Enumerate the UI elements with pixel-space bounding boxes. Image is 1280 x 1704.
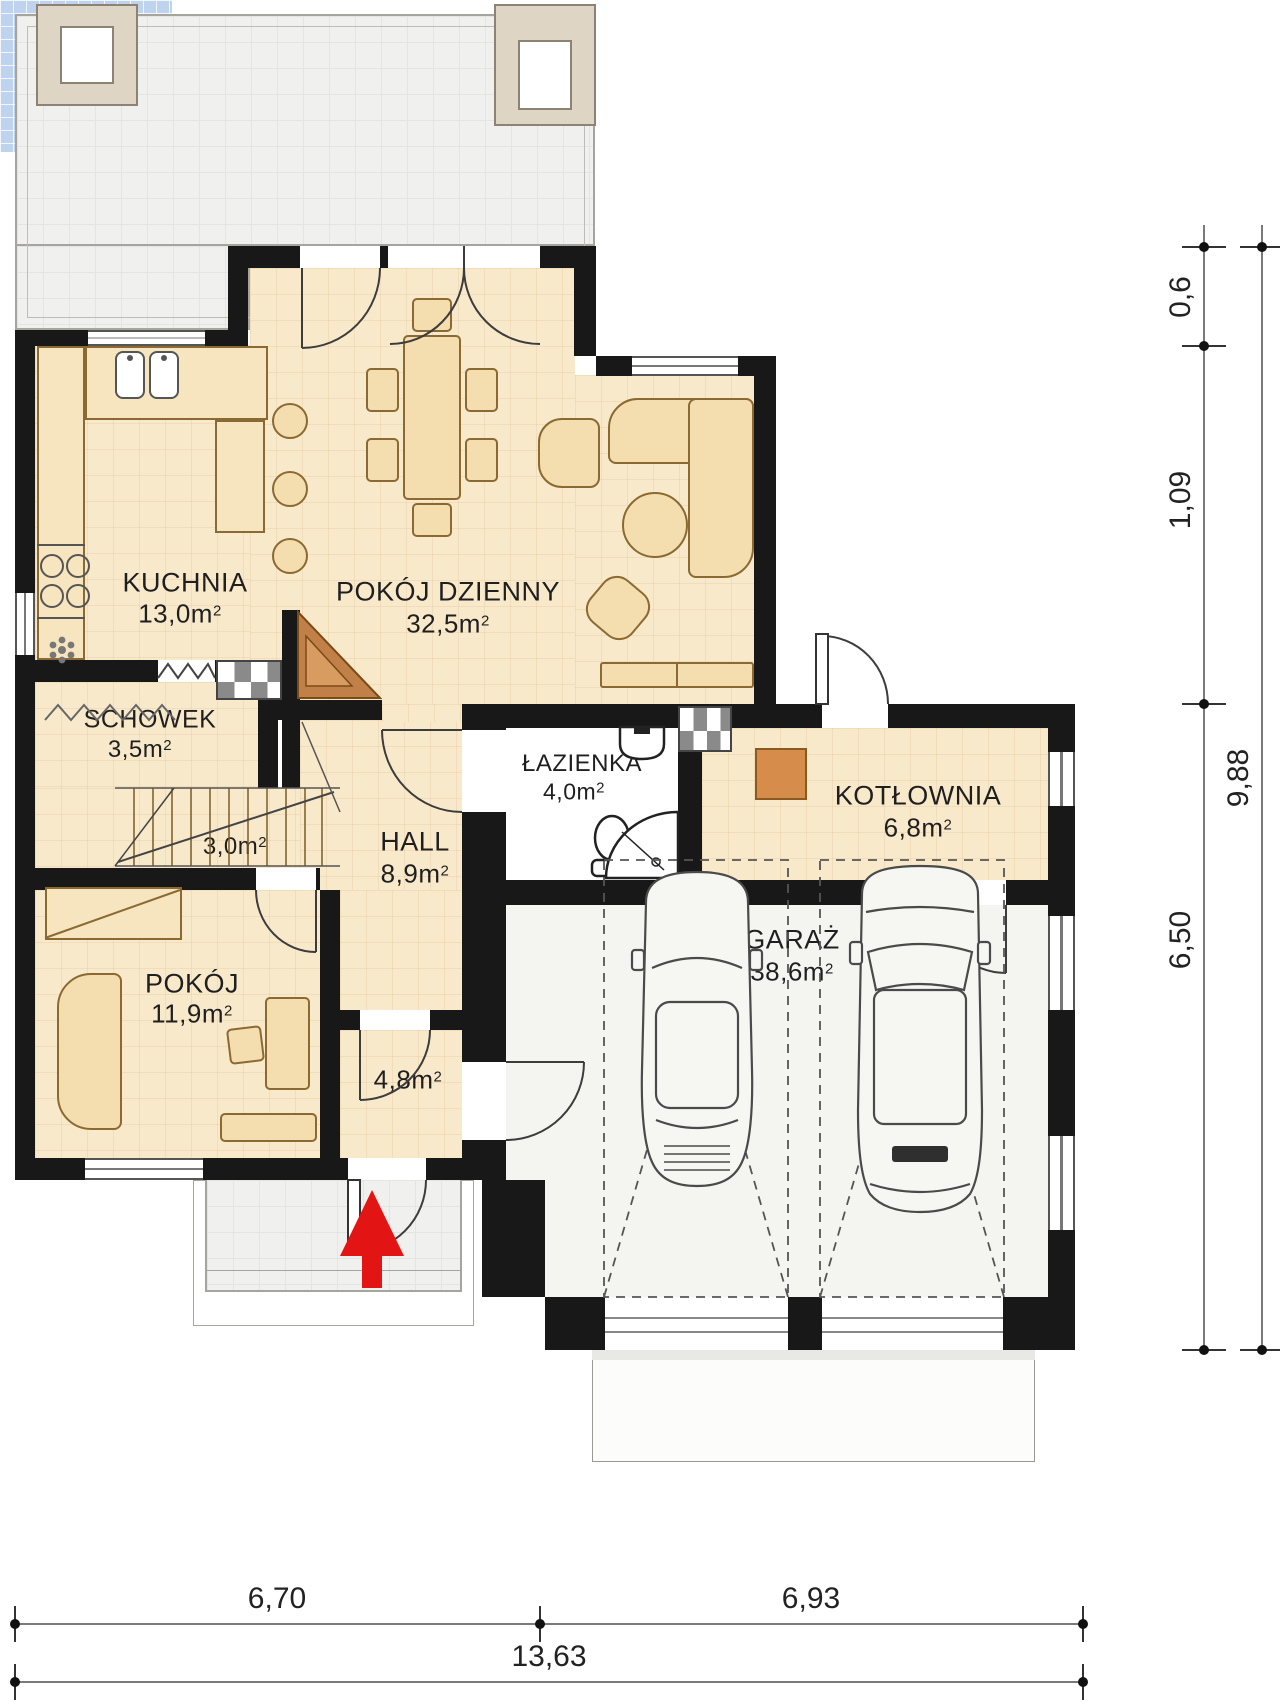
room-area-kuchnia: 13,0m2 [138,599,222,630]
window-schowek [15,593,35,655]
stairs-floor [35,788,320,868]
door-opening-pokoj [256,868,316,890]
window-boiler-room [1048,752,1075,806]
dim-right-1: 1,09 [1164,471,1197,529]
window-living-east [632,356,738,376]
corner-sofa-side [688,398,754,578]
wall [380,246,388,268]
wall [1003,1297,1075,1350]
wall [203,1158,320,1180]
kitchen-counter-top [85,346,268,420]
dim-right-0: 0,6 [1164,276,1197,318]
wall [15,330,88,346]
room-label-pokoj-dzienny: POKÓJ DZIENNY [336,577,560,608]
wall [1048,1010,1075,1136]
desk-chair [226,1025,265,1065]
room-area-pokoj-dzienny: 32,5m2 [406,609,490,640]
hall-floor-patch [382,704,462,722]
garage-door-opening-1 [605,1297,788,1350]
window-kitchen [88,330,205,346]
wall [738,356,776,376]
room-area-schody: 3,0m2 [203,833,267,861]
wall [754,376,776,704]
wall [320,890,340,1158]
hall-floor-lower [340,890,462,1030]
wall [540,246,596,268]
room-label-kotlownia: KOTŁOWNIA [835,781,1002,812]
window-pokoj [85,1158,203,1180]
wall [462,704,822,728]
room-label-hall: HALL [380,827,450,858]
kitchen-island [215,420,265,533]
wall [282,610,300,788]
room-area-hall: 8,9m2 [381,859,450,890]
wall [316,868,320,890]
dining-chair [366,438,399,482]
entrance-porch [205,1180,462,1292]
dining-chair [465,438,498,482]
chimney-block [216,660,282,700]
driveway-top-band [592,1350,1035,1360]
dining-chair [412,298,452,332]
pillar-core [60,26,114,84]
dining-chair [465,368,498,412]
coffee-table-round [622,492,688,558]
shelf [220,1113,317,1142]
front-door-opening [348,1158,426,1180]
wall [270,700,382,720]
door-opening-garage-vest [462,1062,506,1140]
dim-bottom-2: 13,63 [511,1640,586,1673]
door-opening-bathroom [462,730,506,812]
tv-bench-divider [676,664,678,686]
dining-chair [366,368,399,412]
sofa [57,973,122,1130]
window-garage-2 [1048,1136,1075,1230]
wall [430,1010,462,1030]
wall [35,660,158,682]
room-label-schowek: SCHOWEK [84,706,217,735]
wall [15,655,35,1173]
room-label-garaz: GARAŻ [744,925,840,956]
room-label-pokoj: POKÓJ [145,969,239,1000]
wall [788,1297,822,1350]
chimney-block [678,706,732,752]
dim-bottom-0: 6,70 [248,1582,306,1615]
wall [545,1297,605,1350]
dim-right-2: 6,50 [1164,911,1197,969]
dining-table [403,335,461,500]
room-area-schowek: 3,5m2 [108,736,172,764]
room-label-lazienka: ŁAZIENKA [522,750,642,778]
room-area-lazienka: 4,0m2 [543,779,605,806]
wardrobe [45,887,182,940]
floor-plan: KUCHNIA 13,0m2 POKÓJ DZIENNY 32,5m2 SCHO… [0,0,1280,1704]
desk [265,997,310,1090]
boiler-door-leaf [816,634,828,704]
room-area-garaz: 38,6m2 [750,957,834,988]
french-door-opening [388,246,540,268]
wall [506,880,938,905]
wall [320,1158,348,1180]
dim-right-3: 9,88 [1222,749,1255,807]
wall [15,346,35,593]
wall [248,246,300,268]
porch-step-line [205,1270,462,1271]
wall [888,704,1075,728]
toilet-icon [592,816,632,876]
wall [1006,880,1048,905]
pillar-core [518,40,572,110]
driveway [592,1350,1035,1462]
wall [340,1010,360,1030]
room-area-pokoj: 11,9m2 [151,999,233,1030]
garage-door-opening-2 [822,1297,1003,1350]
wall [1048,704,1075,752]
room-area-kotlownia: 6,8m2 [884,813,953,844]
shower-icon [606,812,678,878]
window-garage-1 [1048,916,1075,1010]
door-opening-boiler-garage [938,880,1006,905]
wall [15,1158,85,1180]
folding-door-opening-schowek [158,660,215,682]
door-opening-boiler-ext [822,704,888,728]
wall [596,356,632,376]
wall [574,268,596,356]
wall [1048,806,1075,916]
door-opening-vestibule [360,1010,430,1030]
door-opening-living [300,246,380,268]
wall [482,1180,545,1297]
room-label-kuchnia: KUCHNIA [122,568,247,599]
dining-chair [412,503,452,537]
dim-bottom-1: 6,93 [782,1582,840,1615]
wall [205,330,248,346]
room-area-wiatrolap: 4,8m2 [374,1065,443,1096]
kitchen-counter-left [37,346,85,660]
boiler [755,748,807,800]
armchair [538,418,600,488]
